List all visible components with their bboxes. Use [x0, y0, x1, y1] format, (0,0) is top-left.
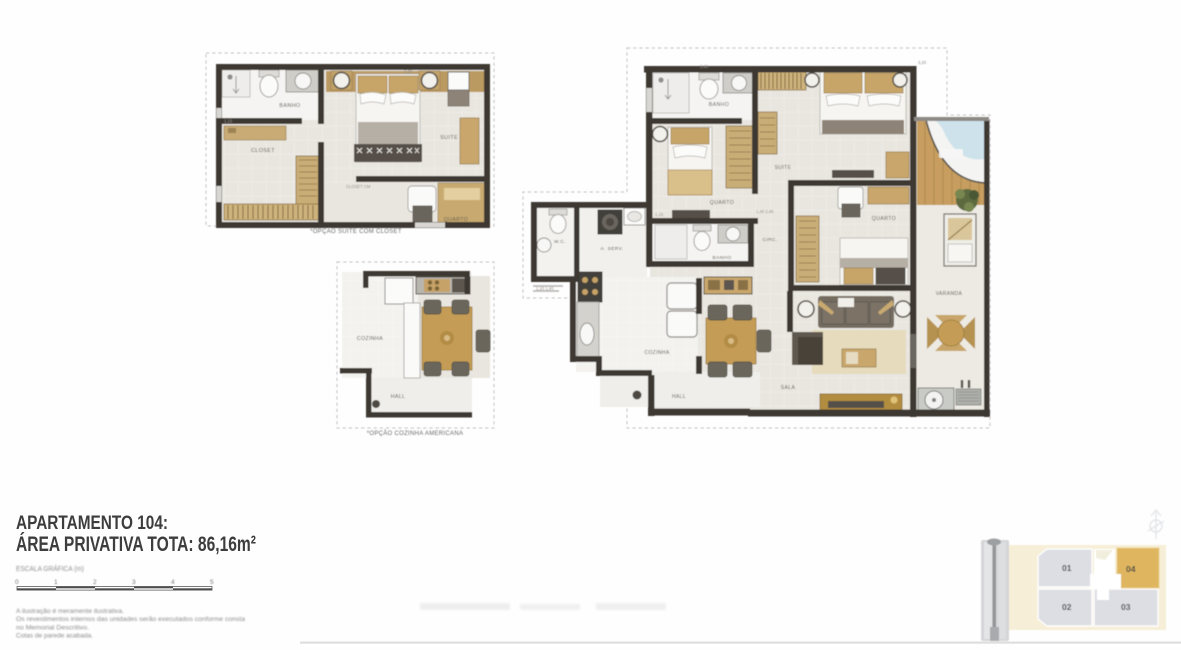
svg-text:HALL: HALL [672, 394, 686, 400]
svg-text:BANHO: BANHO [709, 102, 729, 108]
svg-text:04: 04 [1126, 564, 1136, 574]
svg-text:A ilustração é meramente ilust: A ilustração é meramente ilustrativa. [16, 608, 124, 615]
svg-text:1,40 2,40: 1,40 2,40 [756, 209, 774, 214]
svg-text:3,20: 3,20 [918, 60, 927, 65]
svg-text:1: 1 [54, 579, 58, 586]
svg-text:A. SERV.: A. SERV. [601, 246, 624, 252]
svg-text:Cotas de parede acabada.: Cotas de parede acabada. [16, 633, 93, 640]
svg-text:2: 2 [93, 579, 97, 586]
svg-text:3: 3 [132, 579, 136, 586]
svg-text:ÁREA PRIVATIVA TOTA: 86,16m²: ÁREA PRIVATIVA TOTA: 86,16m² [16, 531, 256, 556]
svg-text:5: 5 [210, 579, 214, 586]
svg-text:HALL: HALL [391, 394, 406, 400]
svg-text:ESCALA GRÁFICA (m): ESCALA GRÁFICA (m) [16, 564, 84, 573]
svg-text:APARTAMENTO 104:: APARTAMENTO 104: [16, 513, 168, 534]
svg-text:2,60: 2,60 [404, 69, 413, 74]
svg-text:BANHO: BANHO [712, 255, 731, 261]
svg-text:no Memorial Descritivo.: no Memorial Descritivo. [16, 625, 89, 632]
svg-text:QUARTO: QUARTO [872, 216, 896, 222]
svg-text:SUITE: SUITE [775, 165, 792, 171]
svg-text:W.C.: W.C. [554, 239, 566, 245]
svg-text:VARANDA: VARANDA [936, 291, 963, 297]
svg-text:0: 0 [15, 579, 19, 586]
svg-text:COZINHA: COZINHA [644, 350, 670, 356]
svg-text:2,60: 2,60 [700, 64, 709, 69]
svg-text:03: 03 [1121, 602, 1131, 612]
svg-text:SALA: SALA [781, 385, 796, 391]
svg-text:1,15: 1,15 [655, 212, 664, 217]
svg-text:QUARTO: QUARTO [710, 200, 734, 206]
svg-text:02: 02 [1062, 602, 1072, 612]
svg-text:Os revestimentos internos das: Os revestimentos internos das unidades s… [16, 616, 246, 623]
svg-text:COZINHA: COZINHA [357, 336, 383, 342]
svg-text:1,10 1,40: 1,10 1,40 [536, 286, 554, 291]
svg-text:CIRC.: CIRC. [762, 237, 777, 243]
svg-text:4: 4 [171, 579, 175, 586]
svg-text:1,15: 1,15 [224, 119, 233, 124]
svg-text:BANHO: BANHO [279, 103, 300, 109]
svg-text:CLOSET CM: CLOSET CM [346, 184, 371, 189]
svg-text:SUITE: SUITE [440, 135, 458, 141]
svg-text:*OPÇÃO SUÍTE COM CLOSET: *OPÇÃO SUÍTE COM CLOSET [310, 228, 402, 235]
svg-text:*OPÇÃO COZINHA AMERICANA: *OPÇÃO COZINHA AMERICANA [367, 430, 464, 437]
svg-text:01: 01 [1062, 563, 1072, 573]
svg-text:CLOSET: CLOSET [251, 148, 275, 154]
